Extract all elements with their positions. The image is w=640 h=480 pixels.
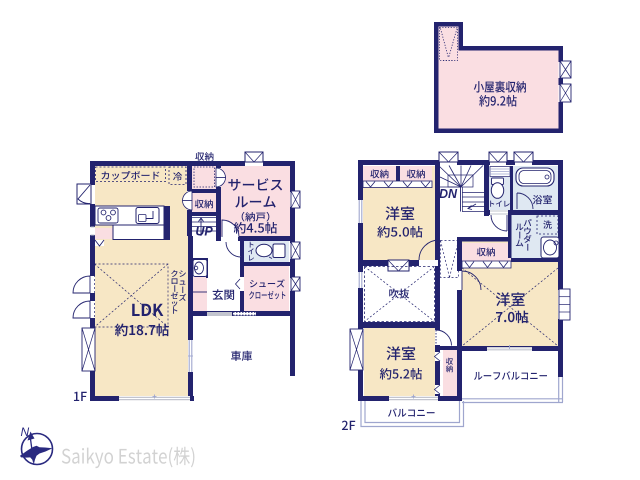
svg-text:N: N xyxy=(21,425,30,439)
svg-text:UP: UP xyxy=(195,225,213,239)
svg-text:DN: DN xyxy=(439,187,458,201)
